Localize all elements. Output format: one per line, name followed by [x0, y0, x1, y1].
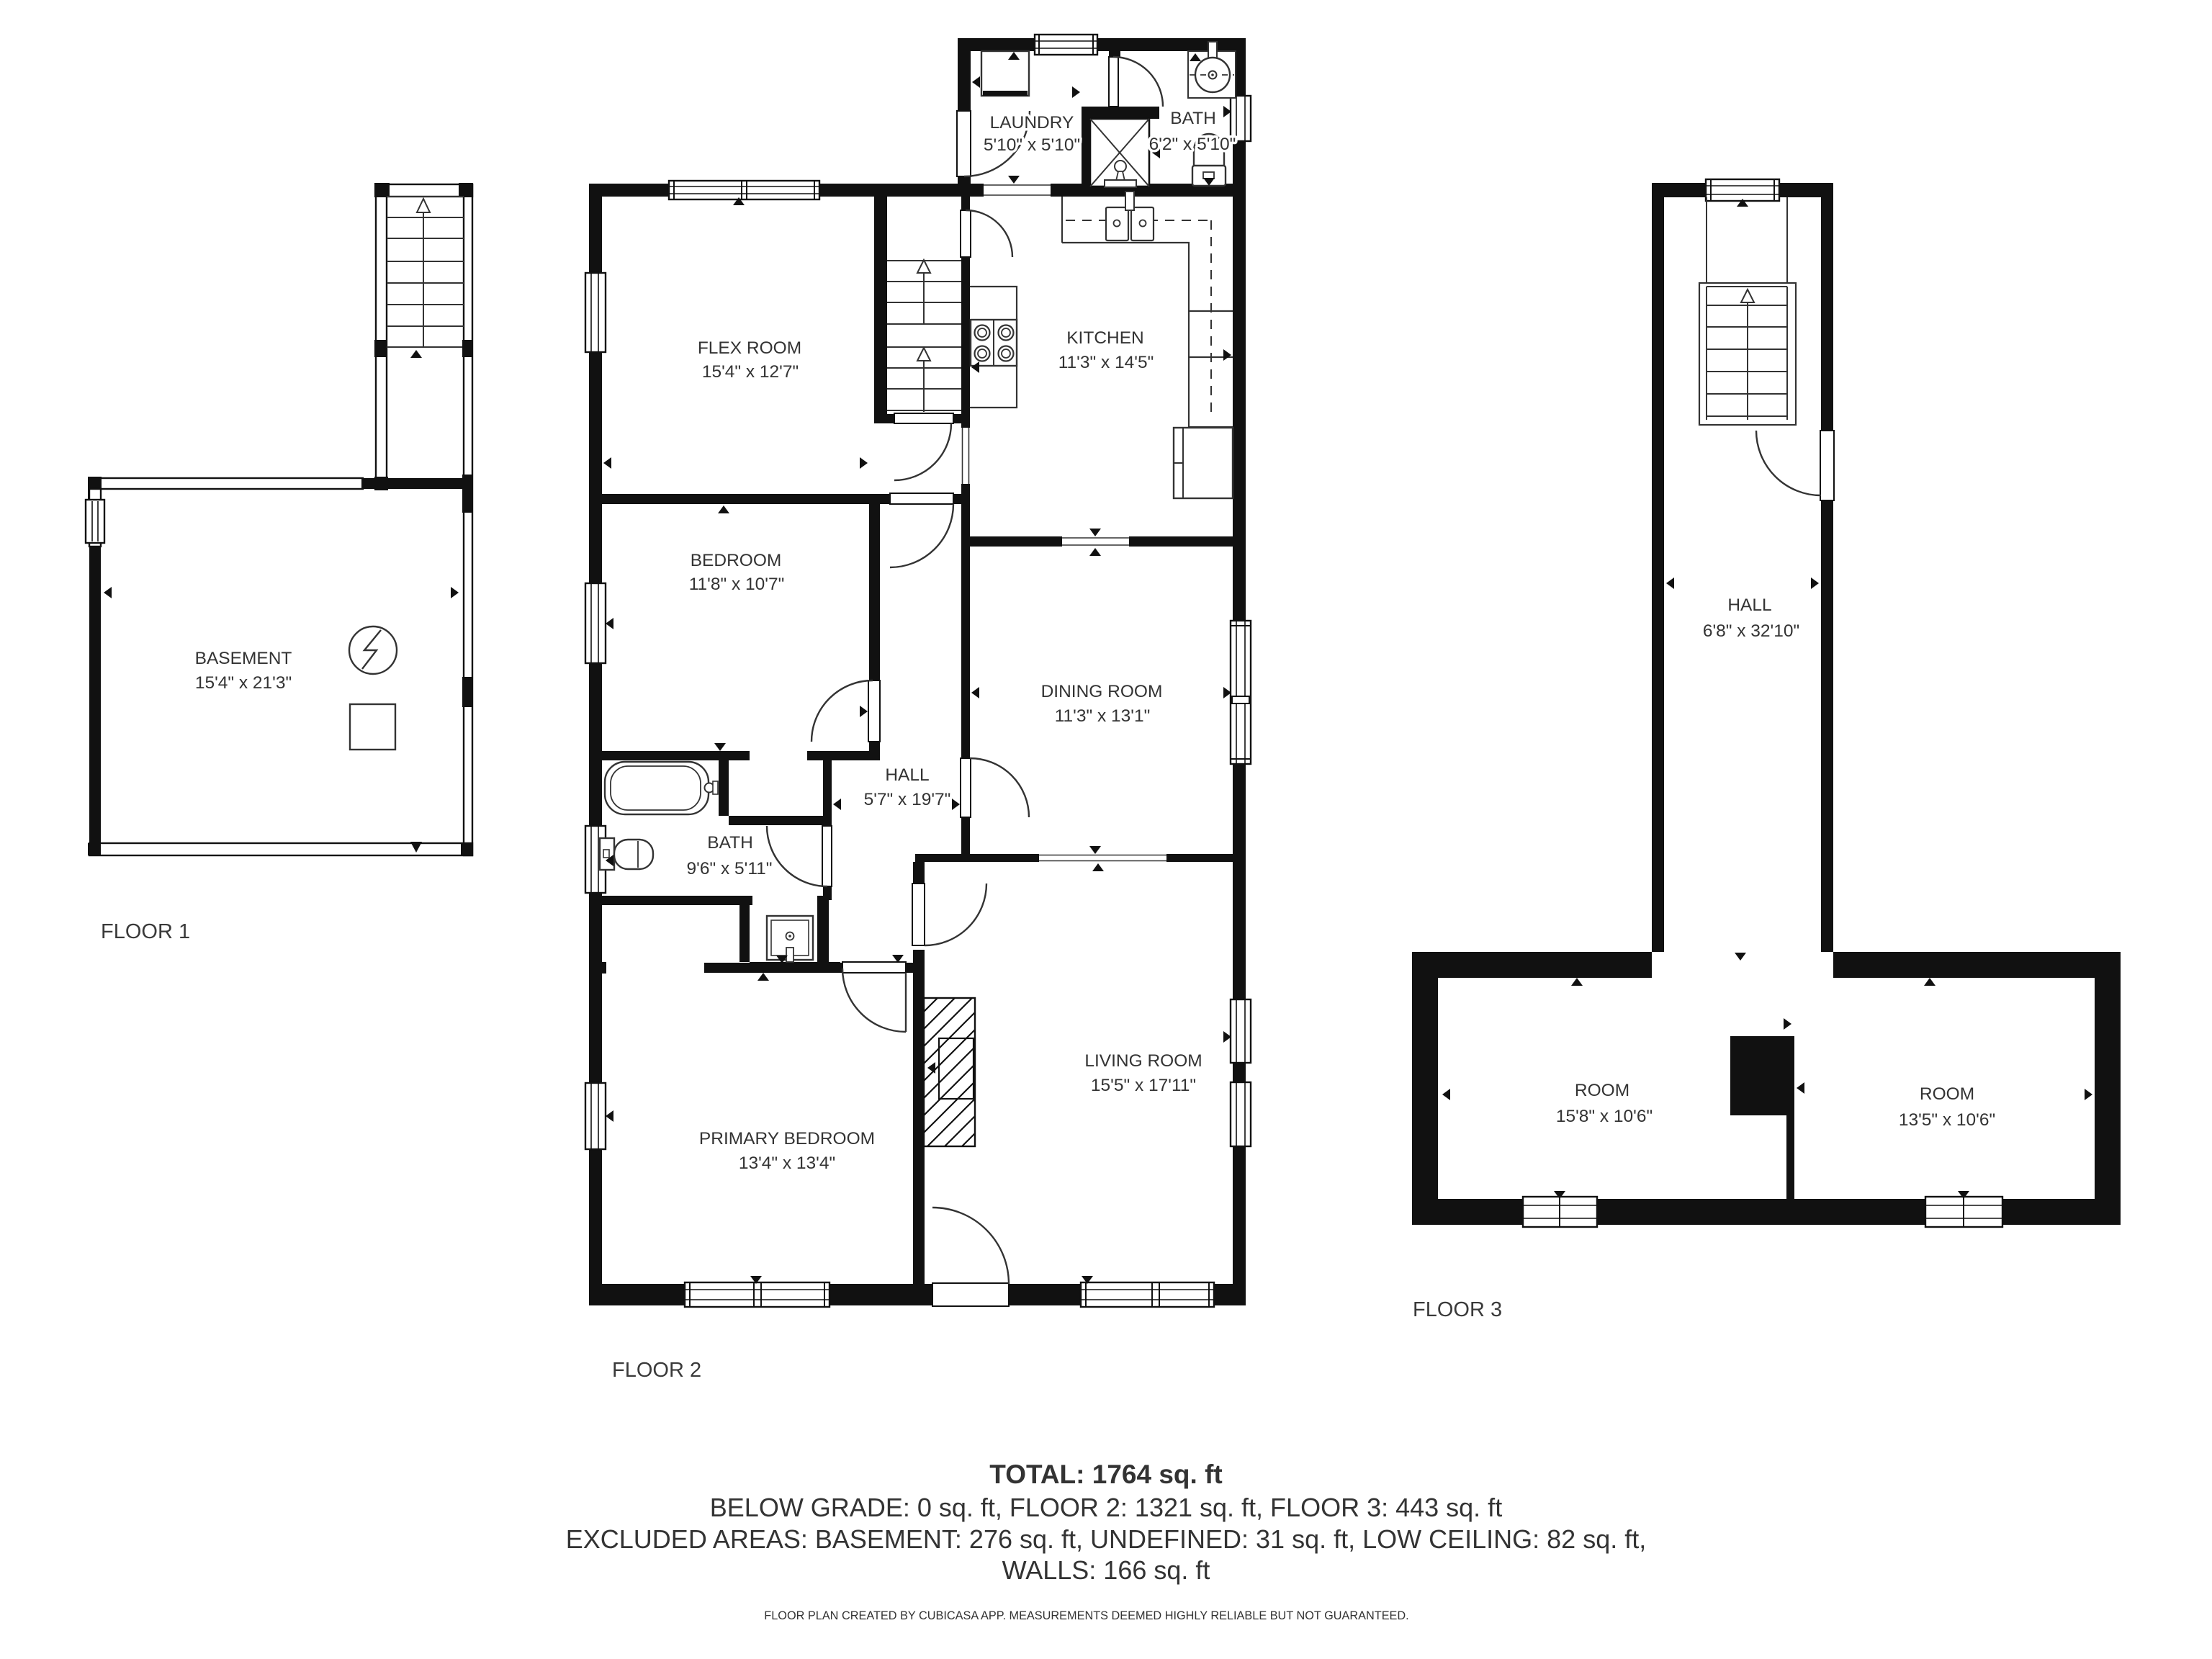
svg-text:5'10" x 5'10": 5'10" x 5'10" [984, 135, 1080, 155]
svg-text:BELOW GRADE: 0 sq. ft, FLOOR 2: BELOW GRADE: 0 sq. ft, FLOOR 2: 1321 sq.… [710, 1493, 1502, 1522]
svg-text:9'6" x 5'11": 9'6" x 5'11" [687, 859, 773, 878]
svg-text:15'5" x 17'11": 15'5" x 17'11" [1091, 1076, 1196, 1095]
svg-text:15'8" x 10'6": 15'8" x 10'6" [1556, 1107, 1653, 1126]
svg-text:15'4" x 12'7": 15'4" x 12'7" [702, 362, 799, 382]
svg-text:FLEX ROOM: FLEX ROOM [698, 338, 801, 358]
svg-text:FLOOR 3: FLOOR 3 [1413, 1298, 1502, 1321]
svg-text:DINING ROOM: DINING ROOM [1041, 682, 1163, 701]
svg-text:11'3" x 13'1": 11'3" x 13'1" [1055, 706, 1151, 726]
svg-text:FLOOR 1: FLOOR 1 [101, 920, 190, 943]
svg-text:HALL: HALL [885, 765, 929, 785]
svg-text:ROOM: ROOM [1575, 1081, 1629, 1100]
svg-text:LIVING ROOM: LIVING ROOM [1084, 1051, 1202, 1071]
svg-text:13'5" x 10'6": 13'5" x 10'6" [1899, 1110, 1995, 1130]
svg-text:BATH: BATH [1170, 109, 1216, 128]
svg-text:13'4" x 13'4": 13'4" x 13'4" [739, 1154, 835, 1173]
svg-text:11'8" x 10'7": 11'8" x 10'7" [689, 575, 785, 594]
svg-text:WALLS: 166 sq. ft: WALLS: 166 sq. ft [1002, 1555, 1210, 1585]
svg-text:5'7" x 19'7": 5'7" x 19'7" [864, 790, 951, 809]
svg-text:FLOOR PLAN CREATED BY CUBICASA: FLOOR PLAN CREATED BY CUBICASA APP. MEAS… [764, 1609, 1408, 1622]
svg-text:KITCHEN: KITCHEN [1066, 328, 1144, 348]
svg-text:11'3" x 14'5": 11'3" x 14'5" [1058, 353, 1154, 372]
svg-text:ROOM: ROOM [1920, 1084, 1974, 1104]
svg-text:HALL: HALL [1727, 595, 1771, 615]
svg-text:BEDROOM: BEDROOM [691, 551, 782, 570]
svg-text:PRIMARY BEDROOM: PRIMARY BEDROOM [699, 1129, 875, 1148]
svg-text:BASEMENT: BASEMENT [195, 649, 292, 668]
svg-text:EXCLUDED AREAS: BASEMENT: 276: EXCLUDED AREAS: BASEMENT: 276 sq. ft, UN… [566, 1524, 1646, 1554]
svg-text:BATH: BATH [707, 833, 753, 853]
svg-text:6'2" x 5'10": 6'2" x 5'10" [1149, 135, 1236, 154]
svg-text:FLOOR 2: FLOOR 2 [612, 1359, 701, 1382]
svg-text:15'4" x 21'3": 15'4" x 21'3" [195, 673, 292, 693]
svg-text:TOTAL: 1764 sq. ft: TOTAL: 1764 sq. ft [989, 1460, 1222, 1489]
svg-text:LAUNDRY: LAUNDRY [990, 113, 1074, 132]
svg-text:6'8" x 32'10": 6'8" x 32'10" [1703, 621, 1799, 641]
